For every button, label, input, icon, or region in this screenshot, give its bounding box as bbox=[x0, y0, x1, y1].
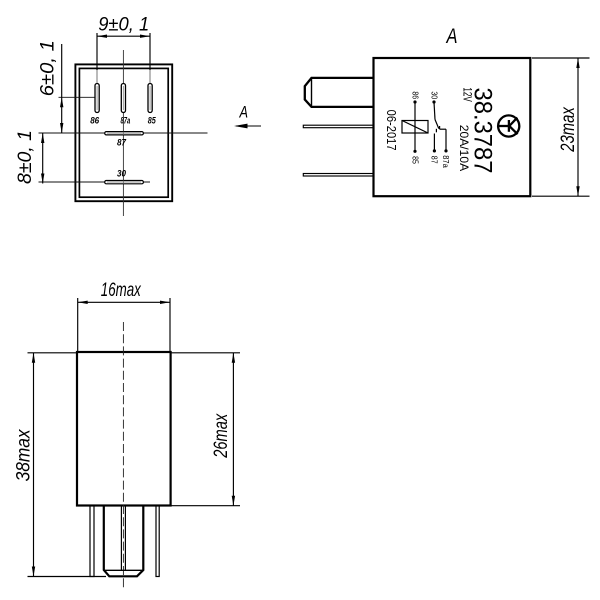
svg-text:87a: 87a bbox=[121, 115, 131, 126]
svg-text:26max: 26max bbox=[210, 413, 232, 459]
svg-text:87a: 87a bbox=[441, 155, 450, 168]
svg-text:85: 85 bbox=[148, 115, 157, 126]
svg-text:38.3787: 38.3787 bbox=[468, 88, 496, 174]
svg-text:86: 86 bbox=[90, 115, 100, 126]
svg-text:9±0, 1: 9±0, 1 bbox=[98, 13, 149, 35]
svg-text:30: 30 bbox=[117, 168, 127, 179]
svg-text:85: 85 bbox=[410, 156, 419, 164]
svg-text:87: 87 bbox=[117, 138, 127, 149]
svg-text:A: A bbox=[445, 25, 458, 48]
svg-text:06-2017: 06-2017 bbox=[384, 110, 398, 151]
svg-text:6±0, 1: 6±0, 1 bbox=[37, 40, 59, 96]
svg-text:16max: 16max bbox=[101, 279, 142, 301]
svg-text:23max: 23max bbox=[557, 106, 579, 152]
svg-text:87: 87 bbox=[430, 156, 439, 164]
svg-text:86: 86 bbox=[410, 91, 419, 99]
svg-text:30: 30 bbox=[429, 91, 438, 99]
svg-text:38max: 38max bbox=[13, 428, 35, 481]
svg-text:8±0, 1: 8±0, 1 bbox=[14, 130, 36, 184]
svg-text:A: A bbox=[239, 103, 248, 122]
